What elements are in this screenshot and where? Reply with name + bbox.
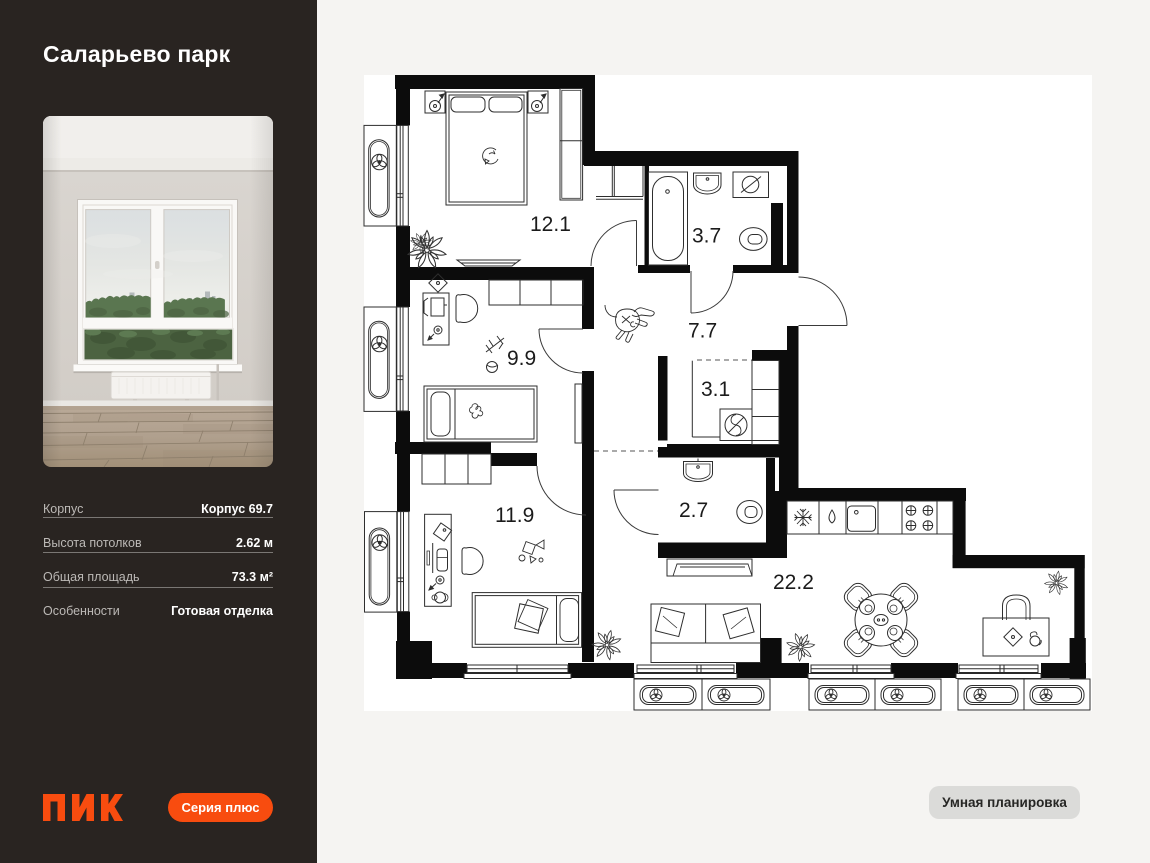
svg-text:9.9: 9.9 [507,347,536,370]
svg-text:11.9: 11.9 [495,504,534,527]
svg-text:7.7: 7.7 [688,320,717,343]
svg-text:3.7: 3.7 [692,225,721,248]
svg-text:22.2: 22.2 [773,571,814,594]
svg-text:2.7: 2.7 [679,499,708,522]
svg-text:3.1: 3.1 [701,378,730,401]
svg-text:12.1: 12.1 [530,213,571,236]
